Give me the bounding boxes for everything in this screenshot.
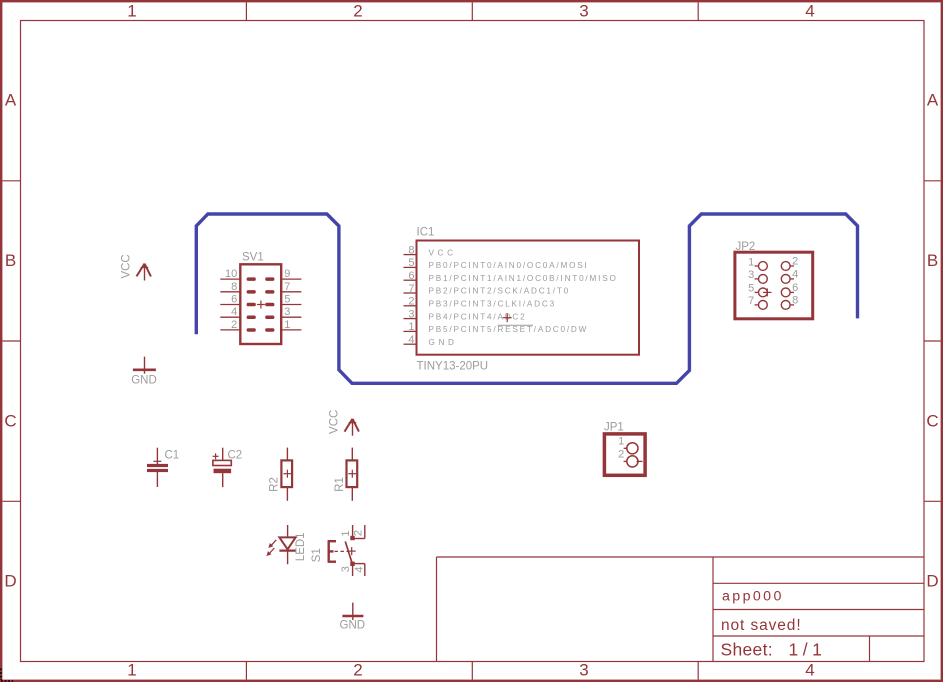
svg-text:IC1: IC1 [417,227,435,239]
svg-text:4: 4 [354,566,366,572]
svg-text:app000: app000 [722,589,784,605]
svg-text:7: 7 [284,281,290,293]
svg-text:S1: S1 [311,548,323,562]
svg-text:C: C [4,412,16,431]
svg-text:VCC: VCC [121,254,133,278]
svg-text:1: 1 [340,531,352,537]
svg-text:PB4/PCINT4/ADC2: PB4/PCINT4/ADC2 [429,312,527,321]
svg-text:3: 3 [748,269,754,281]
svg-text:A: A [5,91,17,110]
svg-text:4: 4 [805,2,814,21]
svg-text:1: 1 [618,435,624,447]
svg-text:Sheet:: Sheet: [721,640,773,660]
svg-text:2: 2 [618,449,624,461]
svg-text:7: 7 [748,295,754,307]
svg-text:SV1: SV1 [242,252,264,264]
svg-text:6: 6 [792,282,798,294]
svg-text:C2: C2 [228,450,243,462]
svg-text:4: 4 [792,269,798,281]
svg-text:PB2/PCINT2/SCK/ADC1/T0: PB2/PCINT2/SCK/ADC1/T0 [429,287,571,296]
svg-text:LED1: LED1 [295,532,307,561]
svg-text:VCC: VCC [328,410,340,434]
svg-text:C: C [926,412,938,431]
svg-text:2: 2 [352,530,364,536]
svg-text:4: 4 [805,661,814,680]
svg-text:D: D [4,572,16,591]
svg-text:R1: R1 [334,477,346,492]
svg-text:3: 3 [340,566,352,572]
svg-text:1: 1 [748,256,754,268]
svg-text:PB3/PCINT3/CLKI/ADC3: PB3/PCINT3/CLKI/ADC3 [429,300,556,309]
svg-text:6: 6 [231,294,237,306]
svg-text:5: 5 [408,257,414,269]
svg-text:2: 2 [792,256,798,268]
svg-text:8: 8 [231,281,237,293]
svg-text:B: B [927,251,938,270]
svg-text:3: 3 [284,306,290,318]
svg-text:1/1: 1/1 [789,640,827,660]
svg-text:1: 1 [408,321,414,333]
svg-text:not saved!: not saved! [721,617,802,634]
svg-text:GND: GND [340,620,366,632]
svg-text:VCC: VCC [429,248,457,257]
svg-text:1: 1 [127,2,136,21]
svg-text:7: 7 [408,283,414,295]
svg-text:8: 8 [408,244,414,256]
svg-text:GND: GND [131,375,157,387]
svg-text:R2: R2 [269,477,281,492]
svg-text:6: 6 [408,270,414,282]
svg-text:8: 8 [792,295,798,307]
svg-text:9: 9 [284,268,290,280]
svg-text:PB1/PCINT1/AIN1/OC0B/INT0/MISO: PB1/PCINT1/AIN1/OC0B/INT0/MISO [429,274,618,283]
svg-text:2: 2 [353,661,362,680]
svg-text:JP2: JP2 [736,241,756,253]
svg-text:3: 3 [579,2,588,21]
svg-text:3: 3 [408,308,414,320]
svg-text:B: B [5,251,16,270]
svg-text:4: 4 [408,334,414,346]
svg-text:5: 5 [284,294,290,306]
svg-text:PB0/PCINT0/AIN0/OC0A/MOSI: PB0/PCINT0/AIN0/OC0A/MOSI [429,261,589,270]
svg-text:10: 10 [225,268,237,280]
svg-text:3: 3 [579,661,588,680]
svg-text:D: D [926,572,938,591]
svg-text:TINY13-20PU: TINY13-20PU [417,361,489,373]
svg-text:2: 2 [408,296,414,308]
svg-text:JP1: JP1 [604,422,624,434]
svg-text:A: A [927,91,939,110]
svg-text:C1: C1 [165,450,180,462]
svg-text:2: 2 [353,2,362,21]
svg-text:4: 4 [231,306,237,318]
svg-text:PB5/PCINT5/RESET/ADC0/DW: PB5/PCINT5/RESET/ADC0/DW [429,325,589,334]
svg-text:1: 1 [284,319,290,331]
svg-text:1: 1 [127,661,136,680]
svg-text:2: 2 [231,319,237,331]
svg-text:5: 5 [748,283,754,295]
svg-text:GND: GND [429,338,458,347]
